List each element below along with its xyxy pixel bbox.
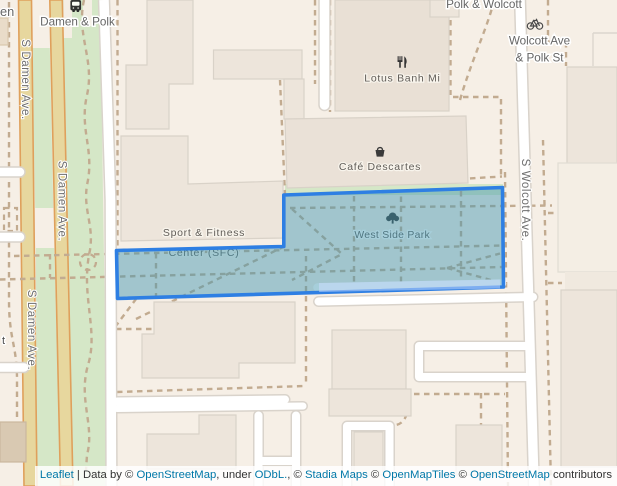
svg-text:Polk & Wolcott: Polk & Wolcott: [446, 0, 523, 11]
svg-text:Lotus Banh Mi: Lotus Banh Mi: [364, 73, 440, 85]
svg-text:S Damen Ave.: S Damen Ave.: [56, 161, 68, 242]
svg-text:S Damen Ave.: S Damen Ave.: [19, 39, 31, 120]
svg-text:S Wolcott Ave.: S Wolcott Ave.: [519, 159, 531, 242]
svg-text:Sport & Fitness: Sport & Fitness: [163, 227, 245, 239]
svg-text:Damen & Polk: Damen & Polk: [40, 16, 115, 29]
svg-text:en: en: [0, 4, 14, 19]
svg-text:S Damen Ave.: S Damen Ave.: [25, 290, 37, 371]
svg-text:& Polk St: & Polk St: [515, 52, 564, 65]
svg-text:t: t: [2, 335, 5, 347]
svg-text:Café Descartes: Café Descartes: [339, 161, 421, 173]
svg-text:Wolcott Ave: Wolcott Ave: [509, 35, 570, 48]
